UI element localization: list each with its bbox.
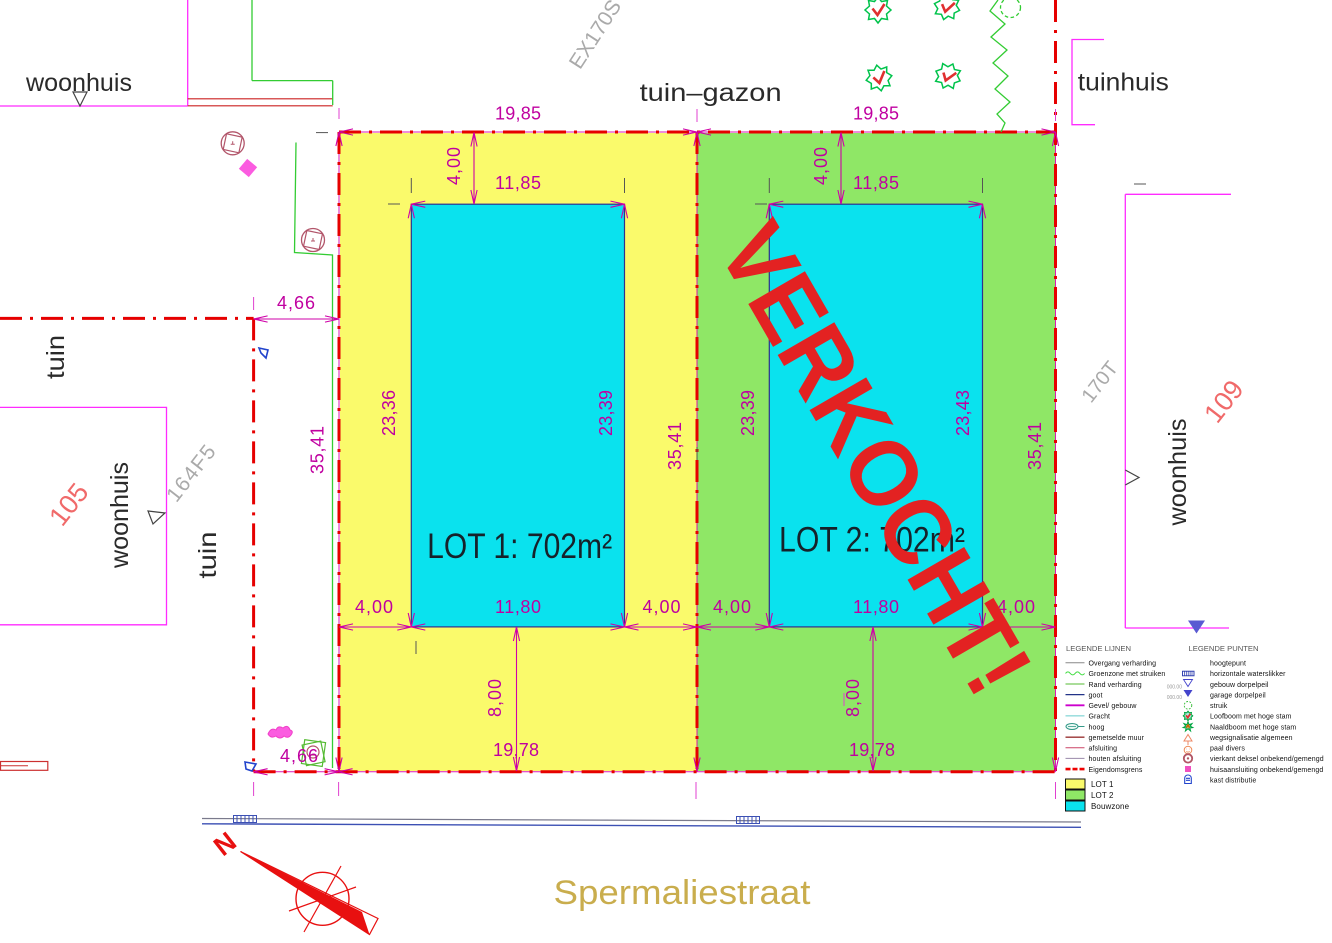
- svg-text:kast distributie: kast distributie: [1210, 778, 1256, 785]
- svg-text:000.00: 000.00: [1167, 685, 1183, 691]
- svg-text:11,85: 11,85: [495, 173, 541, 193]
- svg-text:tuin: tuin: [42, 335, 70, 379]
- svg-text:horizontale waterslikker: horizontale waterslikker: [1210, 671, 1286, 678]
- svg-text:4,66: 4,66: [277, 293, 315, 313]
- svg-text:Loofboom met hoge stam: Loofboom met hoge stam: [1210, 714, 1292, 721]
- svg-text:4,00: 4,00: [444, 147, 464, 185]
- svg-text:4,00: 4,00: [811, 147, 831, 185]
- svg-text:struik: struik: [1210, 703, 1228, 710]
- svg-text:vierkant deksel onbekend/gemen: vierkant deksel onbekend/gemengd: [1210, 756, 1324, 763]
- svg-text:Eigendomsgrens: Eigendomsgrens: [1089, 767, 1143, 774]
- svg-text:garage dorpelpeil: garage dorpelpeil: [1210, 692, 1266, 699]
- svg-text:woonhuis: woonhuis: [1164, 419, 1192, 527]
- svg-text:huisaansluiting onbekend/gemen: huisaansluiting onbekend/gemengd: [1210, 767, 1323, 774]
- svg-text:tuin–gazon: tuin–gazon: [640, 79, 782, 107]
- svg-text:19,85: 19,85: [853, 104, 899, 124]
- svg-text:23,43: 23,43: [953, 390, 973, 436]
- svg-text:35,41: 35,41: [1025, 422, 1045, 470]
- svg-text:11,85: 11,85: [853, 173, 899, 193]
- svg-text:Naaldboom met hoge stam: Naaldboom met hoge stam: [1210, 724, 1296, 731]
- svg-text:LOT 1: LOT 1: [1091, 780, 1114, 789]
- svg-text:23,39: 23,39: [596, 390, 616, 436]
- svg-text:woonhuis: woonhuis: [106, 462, 134, 569]
- svg-text:23,39: 23,39: [738, 390, 758, 436]
- svg-text:Groenzone met struiken: Groenzone met struiken: [1089, 671, 1166, 678]
- svg-text:8,00: 8,00: [843, 679, 863, 717]
- svg-text:19,85: 19,85: [495, 104, 541, 124]
- svg-text:hoog: hoog: [1089, 724, 1105, 731]
- svg-text:4,00: 4,00: [355, 597, 393, 617]
- svg-text:23,36: 23,36: [379, 390, 399, 436]
- svg-text:LEGENDE PUNTEN: LEGENDE PUNTEN: [1189, 644, 1259, 653]
- svg-text:19,78: 19,78: [849, 740, 895, 760]
- svg-text:Overgang verharding: Overgang verharding: [1089, 661, 1157, 668]
- svg-text:wegsignalisatie algemeen: wegsignalisatie algemeen: [1209, 735, 1293, 742]
- svg-text:35,41: 35,41: [665, 422, 685, 470]
- svg-text:11,80: 11,80: [495, 597, 541, 617]
- svg-text:8,00: 8,00: [485, 679, 505, 717]
- svg-text:19,78: 19,78: [493, 740, 539, 760]
- svg-text:Spermaliestraat: Spermaliestraat: [554, 874, 812, 912]
- svg-text:LEGENDE LIJNEN: LEGENDE LIJNEN: [1066, 644, 1131, 653]
- svg-text:tuinhuis: tuinhuis: [1078, 69, 1169, 97]
- svg-text:houten afsluiting: houten afsluiting: [1089, 756, 1142, 763]
- svg-text:gemetselde muur: gemetselde muur: [1089, 735, 1145, 742]
- svg-text:paal divers: paal divers: [1210, 746, 1245, 753]
- svg-text:35,41: 35,41: [308, 426, 328, 474]
- svg-text:4,00: 4,00: [713, 597, 751, 617]
- svg-text:woonhuis: woonhuis: [25, 69, 132, 97]
- svg-text:afsluiting: afsluiting: [1089, 746, 1118, 753]
- svg-text:tuin: tuin: [194, 532, 222, 579]
- svg-text:11,80: 11,80: [853, 597, 899, 617]
- svg-text:Gevel/ gebouw: Gevel/ gebouw: [1089, 703, 1138, 710]
- svg-text:gebouw dorpelpeil: gebouw dorpelpeil: [1210, 682, 1269, 689]
- svg-text:4,66: 4,66: [280, 746, 318, 766]
- svg-text:LOT 1: 702m²: LOT 1: 702m²: [427, 527, 612, 566]
- svg-text:LOT 2: LOT 2: [1091, 791, 1114, 800]
- svg-text:000.00: 000.00: [1167, 695, 1183, 701]
- svg-text:Rand verharding: Rand verharding: [1089, 682, 1142, 689]
- svg-text:Gracht: Gracht: [1089, 714, 1111, 721]
- svg-text:Bouwzone: Bouwzone: [1091, 802, 1130, 811]
- svg-text:hoogtepunt: hoogtepunt: [1210, 661, 1246, 668]
- svg-text:goot: goot: [1089, 692, 1103, 699]
- svg-text:4,00: 4,00: [643, 597, 681, 617]
